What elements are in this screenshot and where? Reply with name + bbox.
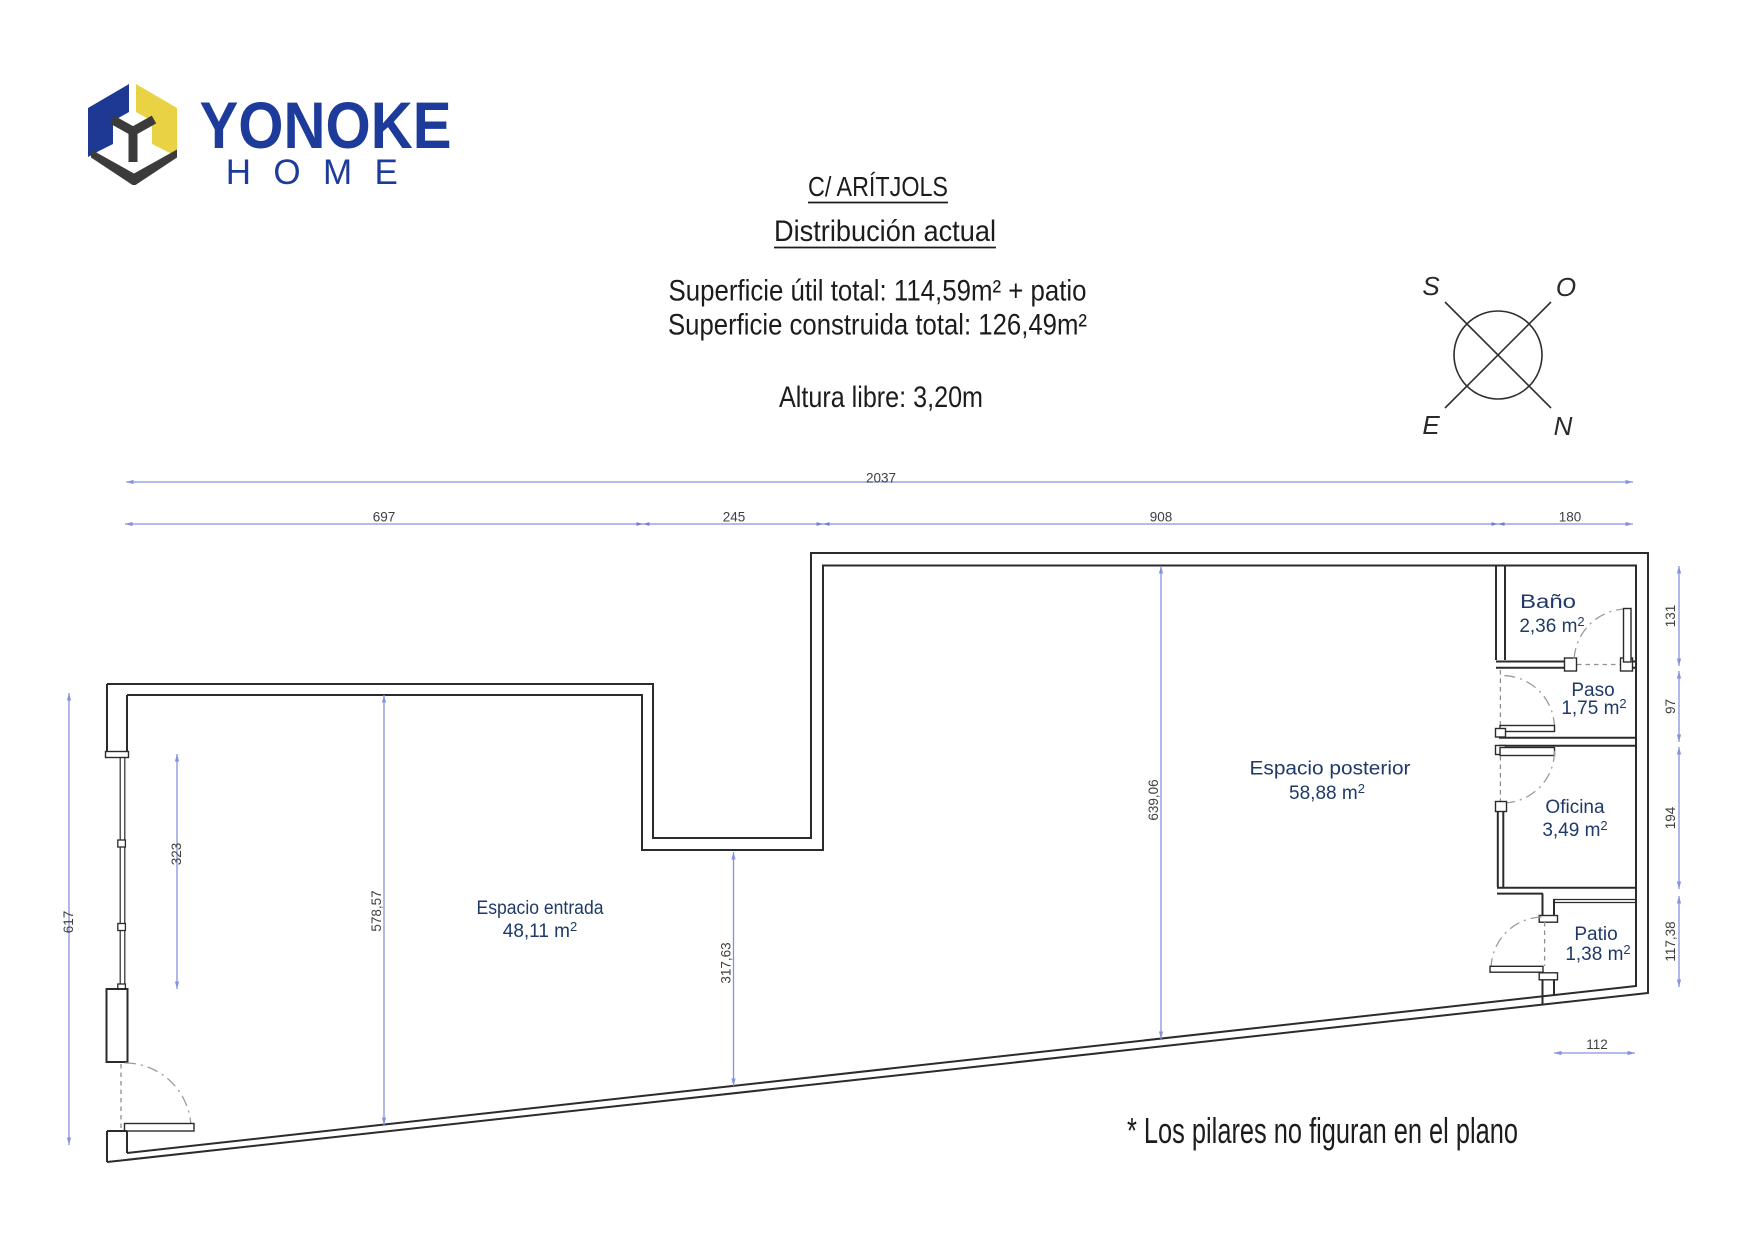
svg-text:E: E [1422, 410, 1440, 440]
svg-text:97: 97 [1663, 699, 1678, 714]
svg-text:Espacio posterior: Espacio posterior [1250, 759, 1412, 780]
svg-text:YONOKE: YONOKE [200, 88, 452, 162]
svg-text:48,11 m2: 48,11 m2 [503, 919, 577, 942]
svg-text:Oficina: Oficina [1545, 797, 1605, 818]
svg-text:S: S [1422, 271, 1440, 301]
svg-text:617: 617 [61, 911, 76, 934]
svg-text:2,36 m2: 2,36 m2 [1519, 614, 1584, 637]
svg-text:Superficie construida total: 1: Superficie construida total: 126,49m² [668, 309, 1087, 342]
svg-text:Superficie útil total: 114,59m: Superficie útil total: 114,59m² + patio [669, 275, 1087, 308]
svg-text:1,38 m2: 1,38 m2 [1565, 942, 1630, 965]
svg-text:245: 245 [723, 510, 746, 525]
svg-text:Patio: Patio [1574, 924, 1617, 945]
svg-text:O: O [1556, 272, 1576, 302]
svg-text:Baño: Baño [1520, 592, 1576, 613]
svg-text:194: 194 [1663, 806, 1678, 829]
svg-text:578,57: 578,57 [369, 890, 384, 931]
svg-text:Distribución actual: Distribución actual [774, 215, 996, 248]
svg-text:112: 112 [1586, 1037, 1608, 1052]
svg-text:117,38: 117,38 [1663, 921, 1678, 961]
svg-text:908: 908 [1150, 510, 1173, 525]
svg-text:58,88 m2: 58,88 m2 [1289, 781, 1365, 804]
svg-text:* Los pilares no figuran en el: * Los pilares no figuran en el plano [1127, 1110, 1518, 1151]
svg-text:131: 131 [1663, 605, 1678, 628]
svg-text:Altura libre: 3,20m: Altura libre: 3,20m [779, 381, 983, 414]
svg-text:N: N [1554, 411, 1573, 441]
svg-text:2037: 2037 [866, 471, 896, 486]
svg-text:317,63: 317,63 [719, 942, 734, 983]
svg-text:180: 180 [1559, 510, 1582, 525]
svg-text:3,49 m2: 3,49 m2 [1542, 818, 1607, 841]
svg-text:323: 323 [169, 843, 184, 866]
svg-text:639,06: 639,06 [1146, 779, 1161, 820]
svg-text:697: 697 [373, 510, 396, 525]
svg-text:1,75 m2: 1,75 m2 [1561, 696, 1626, 719]
svg-text:C/ ARÍTJOLS: C/ ARÍTJOLS [808, 171, 948, 202]
svg-text:Espacio entrada: Espacio entrada [477, 898, 604, 919]
